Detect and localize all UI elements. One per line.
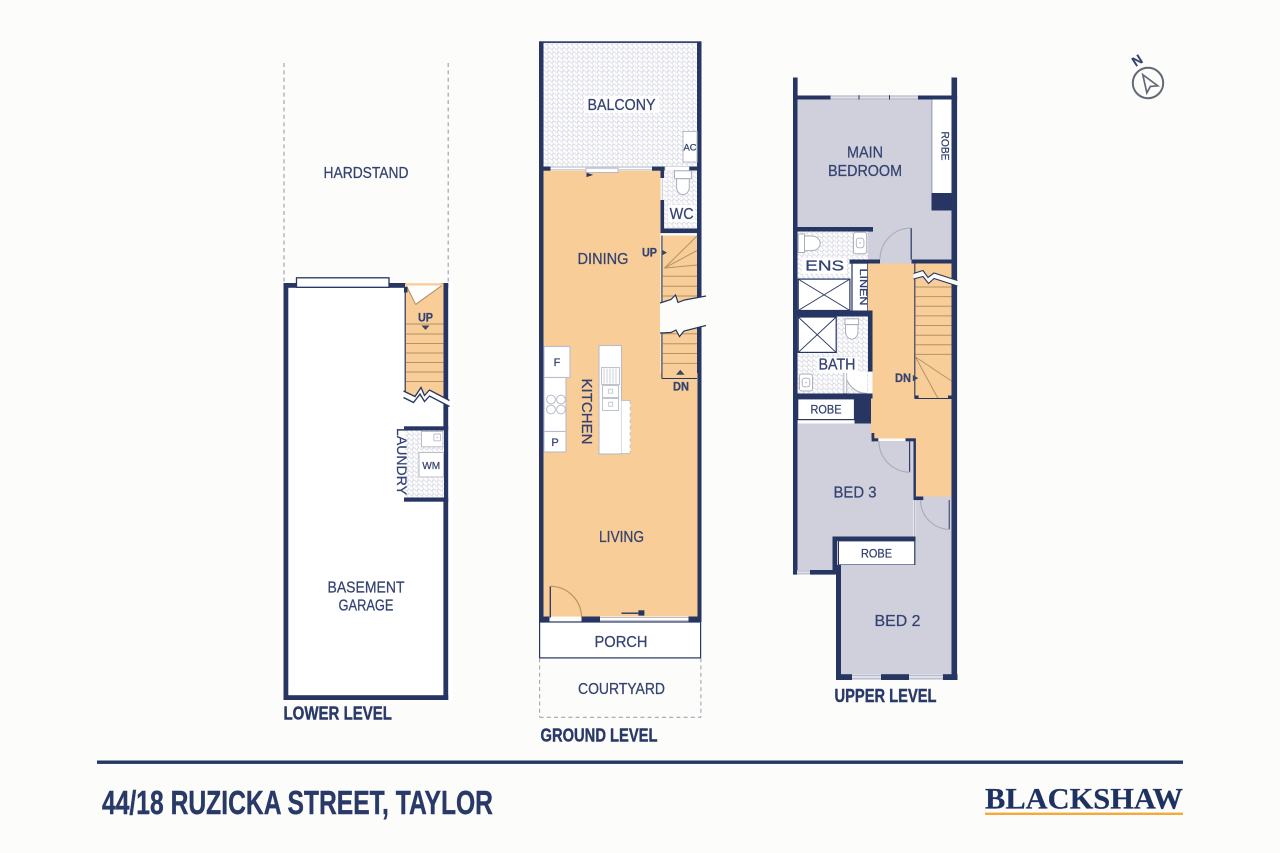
svg-text:ENS: ENS bbox=[805, 258, 844, 275]
svg-text:PORCH: PORCH bbox=[595, 634, 648, 651]
svg-text:BASEMENT: BASEMENT bbox=[328, 580, 405, 597]
svg-text:ROBE: ROBE bbox=[939, 132, 951, 161]
svg-text:GROUND LEVEL: GROUND LEVEL bbox=[541, 725, 658, 746]
svg-text:AC: AC bbox=[684, 143, 697, 154]
svg-text:WC: WC bbox=[670, 206, 694, 223]
svg-text:MAIN: MAIN bbox=[847, 145, 883, 162]
svg-text:BATH: BATH bbox=[819, 357, 856, 374]
svg-text:WM: WM bbox=[422, 460, 440, 472]
svg-text:UP: UP bbox=[418, 313, 433, 325]
svg-text:LINEN: LINEN bbox=[857, 269, 868, 306]
svg-text:DINING: DINING bbox=[578, 251, 629, 268]
svg-text:BLACKSHAW: BLACKSHAW bbox=[985, 784, 1184, 816]
svg-text:BEDROOM: BEDROOM bbox=[828, 163, 902, 180]
svg-text:44/18 RUZICKA STREET, TAYLOR: 44/18 RUZICKA STREET, TAYLOR bbox=[102, 784, 493, 821]
svg-text:COURTYARD: COURTYARD bbox=[578, 681, 665, 698]
svg-text:BED 3: BED 3 bbox=[834, 485, 877, 502]
svg-text:BED 2: BED 2 bbox=[875, 613, 921, 630]
svg-text:DN: DN bbox=[895, 373, 911, 385]
svg-text:BALCONY: BALCONY bbox=[588, 97, 656, 114]
svg-text:UP: UP bbox=[642, 248, 657, 260]
svg-text:F: F bbox=[554, 357, 561, 369]
svg-text:ROBE: ROBE bbox=[811, 405, 842, 417]
svg-text:ROBE: ROBE bbox=[861, 549, 892, 561]
svg-text:KITCHEN: KITCHEN bbox=[578, 379, 595, 445]
svg-text:LOWER LEVEL: LOWER LEVEL bbox=[284, 703, 393, 724]
svg-text:GARAGE: GARAGE bbox=[339, 598, 394, 615]
svg-text:DN: DN bbox=[673, 382, 689, 394]
svg-text:P: P bbox=[551, 437, 558, 449]
svg-text:UPPER LEVEL: UPPER LEVEL bbox=[835, 685, 937, 706]
svg-text:HARDSTAND: HARDSTAND bbox=[324, 165, 409, 182]
svg-text:LIVING: LIVING bbox=[599, 529, 644, 546]
svg-text:LAUNDRY: LAUNDRY bbox=[394, 428, 410, 496]
